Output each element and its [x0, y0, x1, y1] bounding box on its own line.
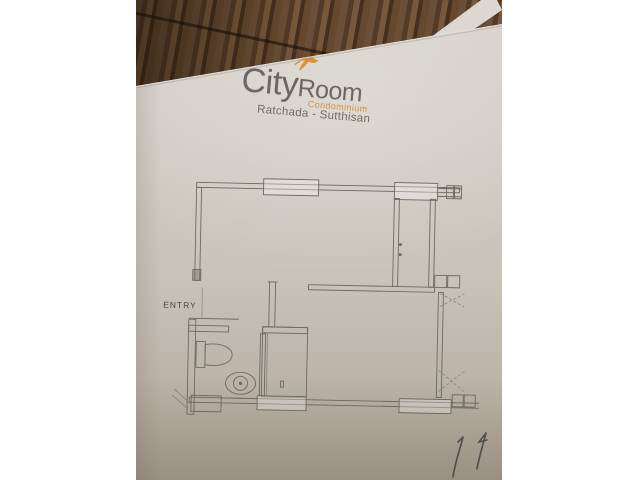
wall-mid-horizontal — [308, 285, 434, 293]
screenshot-canvas: CityRoom Condominium Ratchada - Sutthisa… — [0, 0, 640, 480]
floor-plan: ENTRY — [159, 167, 484, 429]
photo-of-floorplan-sheet: CityRoom Condominium Ratchada - Sutthisa… — [136, 0, 502, 480]
wardrobe-knob — [280, 381, 283, 387]
bottom-end-block-a — [452, 395, 463, 407]
bathroom-wall-top — [189, 325, 229, 332]
column-top-left — [263, 179, 318, 196]
toilet-tank — [196, 341, 206, 367]
entry-door-line — [202, 287, 203, 317]
wardrobe-top-edge — [263, 327, 308, 334]
column-top-right — [394, 182, 437, 200]
sliding-door-bottom — [438, 370, 464, 392]
bathroom-shelf-line — [189, 318, 239, 319]
sink-drain — [239, 382, 241, 384]
wall-right-inner — [429, 199, 436, 287]
bottom-end-block-b — [464, 395, 475, 407]
wardrobe-inner-line — [266, 333, 267, 395]
wall-left — [195, 187, 202, 280]
wall-right-divider — [393, 198, 400, 286]
column-bottom-left — [257, 396, 306, 411]
entry-label: ENTRY — [163, 300, 197, 311]
wall-center-vertical — [269, 282, 276, 327]
column-bottom-right — [399, 399, 451, 414]
wardrobe — [261, 327, 307, 398]
block-mid-right-b — [448, 276, 460, 288]
handwritten-marks — [441, 425, 501, 480]
block-mid-right-a — [435, 275, 447, 287]
door-hinge-dot-b — [399, 254, 401, 256]
wall-left-endcap — [193, 269, 201, 280]
wall-right-outer — [436, 292, 443, 397]
door-hinge-dot-a — [399, 244, 401, 246]
toilet-bowl — [205, 344, 232, 366]
